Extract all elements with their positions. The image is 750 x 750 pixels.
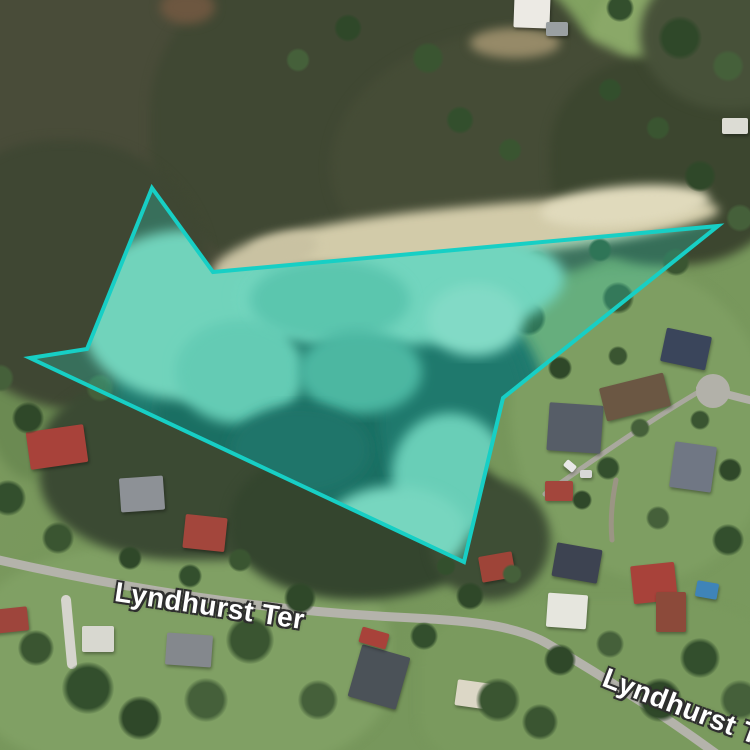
tree-canopy (412, 42, 444, 74)
tree-canopy (662, 248, 690, 276)
tree-canopy (178, 564, 202, 588)
tree-canopy (456, 582, 484, 610)
tree-canopy (62, 662, 114, 714)
tree-canopy (184, 678, 228, 722)
tree-canopy (410, 622, 438, 650)
tree-canopy (608, 346, 628, 366)
tree-canopy (630, 418, 650, 438)
tree-canopy (18, 630, 54, 666)
tree-canopy (718, 458, 742, 482)
tree-canopy (544, 644, 576, 676)
tree-canopy (726, 204, 750, 232)
tree-canopy (42, 522, 74, 554)
tree-canopy (602, 282, 634, 314)
tree-canopy (548, 356, 572, 380)
tree-canopy (510, 300, 546, 336)
tree-canopy (436, 556, 456, 576)
tree-canopy (646, 116, 670, 140)
tree-canopy (334, 14, 362, 42)
tree-canopy (118, 546, 142, 570)
tree-canopy (522, 250, 550, 278)
tree-canopy (118, 696, 162, 740)
tree-canopy (298, 680, 338, 720)
tree-canopy (522, 704, 558, 740)
tree-canopy (712, 50, 744, 82)
tree-canopy (0, 480, 26, 516)
tree-canopy (228, 548, 252, 572)
tree-canopy (598, 78, 622, 102)
tree-canopy (684, 160, 716, 192)
tree-canopy (588, 238, 612, 262)
tree-canopy (658, 16, 702, 60)
tree-canopy (680, 638, 720, 678)
tree-canopy (446, 106, 474, 134)
tree-canopy (502, 564, 522, 584)
tree-canopy (498, 138, 522, 162)
tree-canopy (596, 630, 624, 658)
tree-canopy (606, 0, 634, 22)
vegetation-layer (0, 0, 750, 750)
tree-canopy (86, 374, 114, 402)
tree-canopy (646, 506, 670, 530)
satellite-map-view[interactable]: Lyndhurst Ter Lyndhurst T (0, 0, 750, 750)
tree-canopy (286, 48, 310, 72)
tree-canopy (0, 364, 14, 392)
tree-canopy (690, 410, 710, 430)
tree-canopy (712, 524, 744, 556)
tree-canopy (596, 456, 620, 480)
tree-canopy (476, 678, 520, 722)
tree-canopy (572, 490, 592, 510)
tree-canopy (12, 402, 44, 434)
